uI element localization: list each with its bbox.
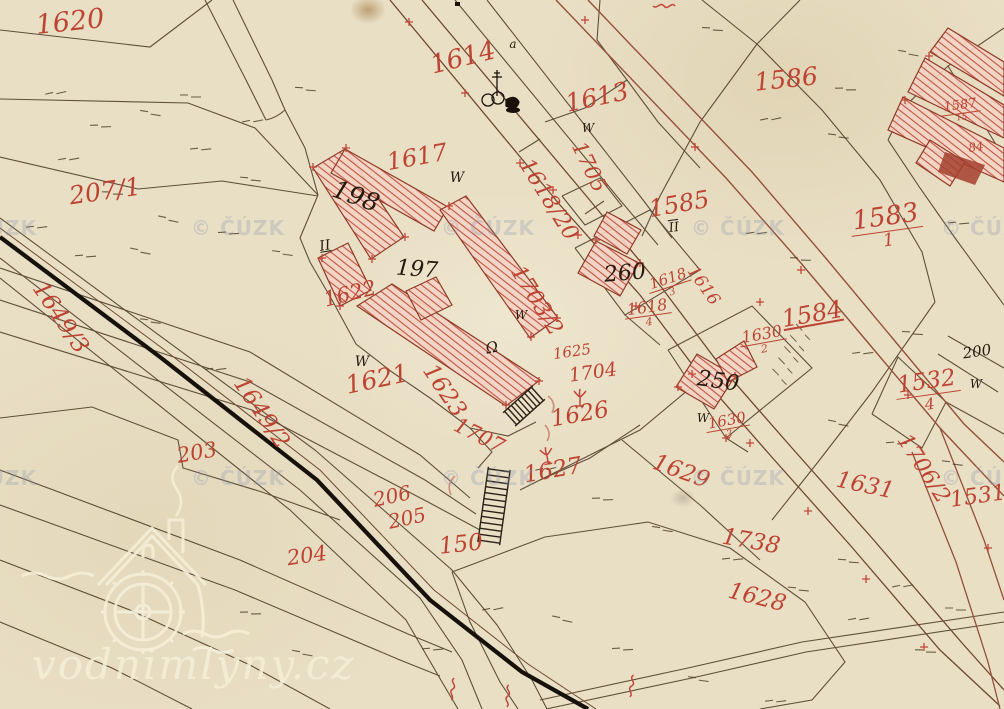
grass-tuft — [838, 559, 859, 562]
grass-tuft — [535, 466, 556, 473]
grass-tuft — [130, 248, 151, 254]
grass-tuft — [612, 647, 633, 650]
boundary-cross-mark — [862, 575, 870, 583]
grass-tuft — [790, 258, 811, 261]
red-brace-mark — [653, 4, 675, 7]
cuzk-watermark: © ČÚZK — [0, 216, 37, 240]
grass-tuft — [75, 254, 96, 257]
survey-mark — [455, 2, 460, 6]
boundary-cross-mark — [461, 89, 469, 97]
map-drawing — [0, 0, 1004, 709]
building-250 — [676, 341, 757, 409]
grass-tuft — [688, 677, 709, 682]
grass-tuft — [190, 147, 211, 151]
grass-tuft — [295, 87, 316, 90]
grass-tuft — [892, 583, 913, 589]
red-brace-mark — [628, 675, 635, 697]
grass-tuft — [702, 27, 723, 30]
grass-tuft — [90, 125, 111, 128]
cuzk-watermark: © ČÚZK — [0, 466, 37, 490]
parcel-boundaries — [0, 0, 1004, 709]
grass-tuft — [760, 116, 781, 122]
grass-tuft — [898, 50, 919, 56]
grass-tuft — [828, 134, 849, 138]
grass-tuft — [102, 192, 123, 194]
grass-tuft — [240, 177, 261, 181]
grass-tuft — [848, 616, 869, 622]
grass-tuft — [915, 650, 936, 652]
slope-hachure — [761, 324, 822, 385]
boundary-cross-mark — [632, 302, 640, 310]
grass-tuft — [272, 251, 293, 256]
cuzk-watermark: © ČÚZK — [441, 466, 535, 490]
cuzk-watermark: © ČÚZK — [191, 216, 285, 240]
tree-symbol — [540, 446, 555, 465]
grass-tuft — [942, 461, 963, 466]
grass-tuft — [140, 110, 161, 115]
grass-tuft — [180, 95, 201, 97]
grass-tuft — [945, 608, 966, 610]
grass-tuft — [852, 350, 873, 355]
logo-text: vodnimlyny.cz — [32, 640, 332, 689]
grass-tuft — [552, 616, 573, 622]
map-canvas[interactable]: 1620207/1161416131586161717051618/201585… — [0, 0, 1004, 709]
building-260 — [578, 212, 641, 296]
chapel-icon — [482, 70, 520, 113]
grass-tuft — [835, 88, 856, 90]
boundary-cross-mark — [581, 16, 589, 24]
grass-tuft — [886, 441, 907, 444]
grass-tuft — [158, 216, 179, 222]
grass-tuft — [722, 557, 743, 561]
boundary-cross-mark — [691, 143, 699, 151]
grass-tuft — [828, 420, 849, 426]
cuzk-watermark: © ČÚZK — [691, 216, 785, 240]
cuzk-watermark: © ČÚZK — [691, 466, 785, 490]
grass-tuft — [592, 498, 613, 501]
boundary-cross-mark — [904, 391, 912, 399]
boundary-cross-mark — [746, 439, 754, 447]
cuzk-watermark: © ČÚZK — [941, 466, 1004, 490]
boundary-cross-mark — [574, 231, 582, 239]
cuzk-watermark: © ČÚZK — [441, 216, 535, 240]
boundary-cross-mark — [756, 298, 764, 306]
grass-tuft — [788, 587, 809, 591]
tree-symbol — [574, 389, 586, 406]
cuzk-watermark: © ČÚZK — [941, 216, 1004, 240]
building-mill-complex — [313, 149, 558, 406]
cuzk-watermark: © ČÚZK — [191, 466, 285, 490]
grass-tuft — [240, 612, 261, 614]
boundary-cross-mark — [804, 507, 812, 515]
grass-tuft — [45, 90, 66, 97]
grass-tuft — [765, 699, 786, 704]
grass-tuft — [242, 118, 263, 124]
grass-tuft — [58, 156, 79, 162]
